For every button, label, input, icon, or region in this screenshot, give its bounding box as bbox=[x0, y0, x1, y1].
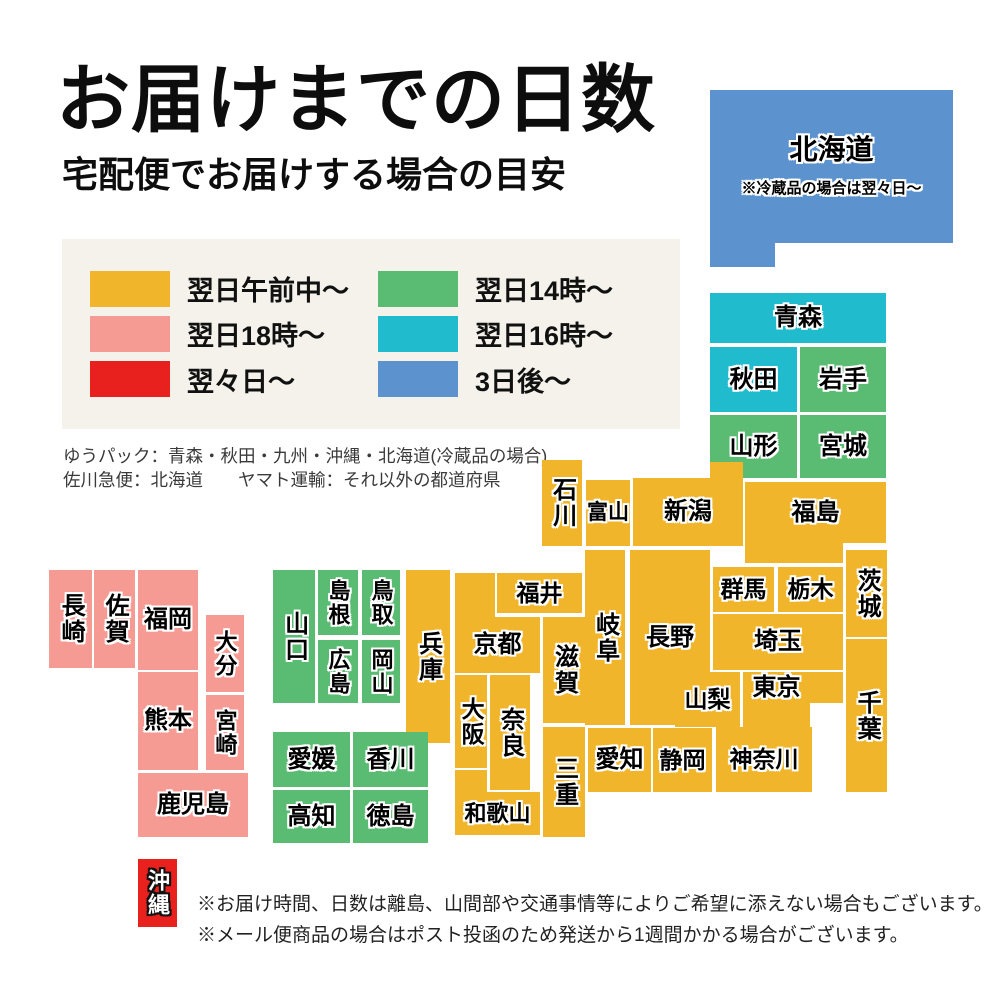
map-block-label: 三重 bbox=[551, 756, 576, 808]
map-block-ehime: 愛媛 bbox=[273, 732, 350, 787]
map-block-label: 和歌山 bbox=[464, 802, 530, 825]
map-block-tokyo: 東京 bbox=[743, 672, 843, 727]
map-block-label: 千葉 bbox=[854, 690, 879, 742]
map-block-iwate: 岩手 bbox=[800, 347, 886, 412]
map-block-label: 鳥取 bbox=[369, 579, 392, 627]
map-block-kumamoto: 熊本 bbox=[138, 672, 198, 770]
map-block-label: 岡山 bbox=[369, 648, 392, 696]
map-block-label: 沖縄 bbox=[146, 869, 169, 917]
map-block-label: 群馬 bbox=[721, 577, 767, 601]
map-block-label: 東京 bbox=[753, 675, 801, 700]
map-block-label: 新潟 bbox=[664, 499, 712, 524]
map-block-label: 熊本 bbox=[144, 708, 192, 733]
map-block-yamaguchi: 山口 bbox=[273, 570, 315, 703]
map-block-nagasaki: 長崎 bbox=[49, 570, 92, 668]
delivery-infographic: お届けまでの日数 宅配便でお届けする場合の目安 翌日午前中〜翌日18時〜翌々日〜… bbox=[0, 0, 1000, 1000]
map-block-label: 鹿児島 bbox=[157, 792, 229, 817]
map-block-akita: 秋田 bbox=[710, 347, 797, 412]
map-block-okayama: 岡山 bbox=[362, 640, 400, 703]
map-block-label: 福岡 bbox=[144, 607, 192, 632]
map-block-label: 北海道 bbox=[789, 135, 873, 164]
map-block-label: 大分 bbox=[213, 630, 236, 678]
map-block-ibaraki: 茨城 bbox=[846, 550, 887, 637]
map-block-label: 神奈川 bbox=[730, 747, 799, 771]
map-block-label: 広島 bbox=[326, 648, 349, 696]
map-block-shizuoka: 静岡 bbox=[653, 728, 712, 792]
map-block-aichi: 愛知 bbox=[588, 728, 651, 792]
map-block-shiga: 滋賀 bbox=[543, 617, 585, 723]
map-block-label: 長野 bbox=[646, 625, 694, 650]
map-block-gunma: 群馬 bbox=[713, 567, 774, 612]
japan-map: 北海道※冷蔵品の場合は翌々日〜青森秋田岩手山形宮城新潟福島石川富山群馬栃木茨城埼… bbox=[0, 0, 1000, 1000]
map-block-saga: 佐賀 bbox=[94, 570, 135, 668]
map-block-kagoshima: 鹿児島 bbox=[138, 773, 248, 837]
map-block-label: 岐阜 bbox=[592, 612, 617, 664]
map-block-label: 徳島 bbox=[367, 804, 415, 829]
map-block-label: 石川 bbox=[549, 477, 574, 529]
map-block-kagawa: 香川 bbox=[353, 732, 428, 787]
map-block-label: 青森 bbox=[774, 305, 822, 330]
map-block-label: 静岡 bbox=[660, 748, 706, 772]
map-block-niigata: 新潟 bbox=[633, 462, 743, 546]
map-block-label: 香川 bbox=[367, 747, 415, 772]
map-block-fukuoka: 福岡 bbox=[138, 570, 198, 670]
map-block-tokushima: 徳島 bbox=[353, 790, 428, 843]
map-block-label: 奈良 bbox=[497, 707, 522, 759]
map-block-label: 兵庫 bbox=[415, 631, 440, 683]
footer-note-line1: ※お届け時間、日数は離島、山間部や交通事情等によりご希望に添えない場合もございま… bbox=[197, 889, 993, 920]
map-block-shimane: 島根 bbox=[318, 570, 358, 635]
map-block-label: 愛知 bbox=[596, 747, 644, 772]
map-block-label: 栃木 bbox=[788, 577, 834, 601]
map-block-kanagawa: 神奈川 bbox=[716, 727, 812, 792]
map-block-label: 山口 bbox=[281, 611, 306, 663]
map-block-label: 愛媛 bbox=[288, 747, 336, 772]
map-block-label: 滋賀 bbox=[551, 644, 576, 696]
map-block-label: 岩手 bbox=[819, 367, 867, 392]
footer-notes: ※お届け時間、日数は離島、山間部や交通事情等によりご希望に添えない場合もございま… bbox=[197, 889, 993, 951]
map-block-label: 佐賀 bbox=[102, 593, 127, 645]
map-block-aomori: 青森 bbox=[710, 293, 886, 343]
map-block-ishikawa: 石川 bbox=[542, 460, 582, 546]
map-block-hiroshima: 広島 bbox=[318, 640, 358, 703]
map-block-fukui: 福井 bbox=[497, 573, 582, 613]
map-block-note: ※冷蔵品の場合は翌々日〜 bbox=[741, 177, 921, 198]
map-block-label: 京都 bbox=[474, 632, 522, 657]
map-block-nara: 奈良 bbox=[490, 675, 530, 790]
map-block-label: 茨城 bbox=[854, 568, 879, 620]
map-block-miyagi: 宮城 bbox=[800, 415, 886, 478]
map-block-label: 埼玉 bbox=[754, 629, 802, 654]
map-block-osaka: 大阪 bbox=[455, 675, 487, 768]
map-block-label: 福島 bbox=[792, 500, 840, 525]
map-block-okinawa: 沖縄 bbox=[138, 859, 177, 927]
map-block-hyogo: 兵庫 bbox=[406, 570, 450, 743]
map-block-label: 山形 bbox=[730, 434, 778, 459]
map-block-label: 山梨 bbox=[685, 687, 731, 711]
map-block-label: 宮城 bbox=[819, 434, 867, 459]
map-block-label: 秋田 bbox=[730, 367, 778, 392]
map-block-kochi: 高知 bbox=[273, 790, 350, 843]
map-block-label: 島根 bbox=[326, 579, 349, 627]
map-block-chiba: 千葉 bbox=[846, 639, 887, 792]
map-block-miyazaki: 宮崎 bbox=[206, 695, 244, 770]
map-block-tottori: 鳥取 bbox=[362, 570, 400, 635]
map-block-toyama: 富山 bbox=[586, 480, 630, 546]
map-block-saitama: 埼玉 bbox=[713, 614, 843, 670]
map-block-oita: 大分 bbox=[206, 615, 244, 692]
map-block-label: 富山 bbox=[587, 502, 629, 524]
map-block-mie: 三重 bbox=[543, 727, 585, 837]
map-block-label: 長崎 bbox=[58, 593, 83, 645]
footer-note-line2: ※メール便商品の場合はポスト投函のため発送から1週間かかる場合がございます。 bbox=[197, 920, 993, 951]
map-block-label: 福井 bbox=[517, 581, 563, 605]
map-block-hokkaido: 北海道※冷蔵品の場合は翌々日〜 bbox=[710, 90, 953, 267]
map-block-gifu: 岐阜 bbox=[585, 550, 625, 725]
map-block-label: 高知 bbox=[288, 804, 336, 829]
map-block-label: 大阪 bbox=[459, 697, 483, 747]
map-block-yamanashi: 山梨 bbox=[675, 672, 740, 727]
map-block-label: 宮崎 bbox=[213, 709, 236, 757]
map-block-tochigi: 栃木 bbox=[778, 567, 843, 612]
